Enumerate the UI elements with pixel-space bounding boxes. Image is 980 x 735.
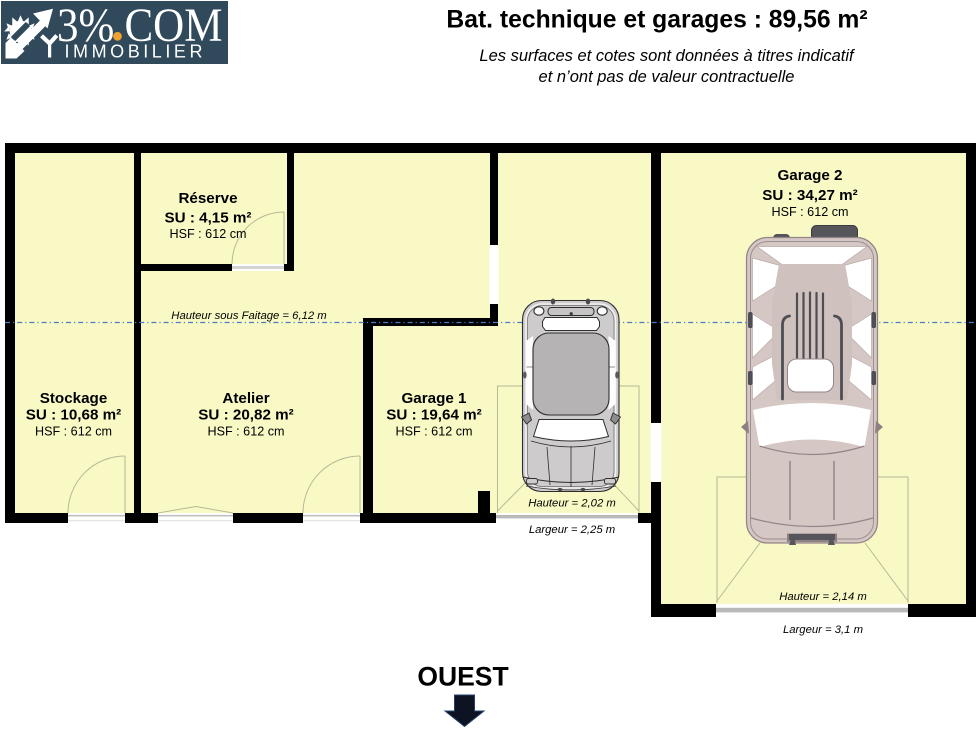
svg-text:Garage 1: Garage 1 <box>401 390 467 407</box>
svg-text:Les surfaces et cotes sont don: Les surfaces et cotes sont données à tit… <box>479 47 856 65</box>
svg-text:Largeur = 3,1 m: Largeur = 3,1 m <box>783 624 863 636</box>
svg-text:Hauteur = 2,02 m: Hauteur = 2,02 m <box>528 498 616 510</box>
svg-text:SU : 4,15 m²: SU : 4,15 m² <box>165 210 252 227</box>
svg-text:HSF : 612 cm: HSF : 612 cm <box>396 425 473 439</box>
svg-text:Hauteur sous Faitage = 6,12 m: Hauteur sous Faitage = 6,12 m <box>171 310 326 322</box>
svg-text:Largeur = 2,25 m: Largeur = 2,25 m <box>529 524 615 536</box>
svg-text:SU : 34,27 m²: SU : 34,27 m² <box>762 187 857 204</box>
svg-text:Hauteur = 2,14 m: Hauteur = 2,14 m <box>779 591 867 603</box>
svg-text:IMMOBILIER: IMMOBILIER <box>65 42 207 62</box>
svg-text:Garage 2: Garage 2 <box>777 167 842 184</box>
svg-text:Atelier: Atelier <box>222 390 269 407</box>
svg-text:Bat. technique et garages : 89: Bat. technique et garages : 89,56 m² <box>446 7 867 34</box>
svg-text:HSF : 612 cm: HSF : 612 cm <box>208 425 285 439</box>
svg-text:Stockage: Stockage <box>40 390 108 407</box>
svg-text:HSF : 612 cm: HSF : 612 cm <box>35 425 112 439</box>
svg-text:et n’ont pas de valeur contrac: et n’ont pas de valeur contractuelle <box>539 68 795 86</box>
svg-text:SU : 10,68 m²: SU : 10,68 m² <box>26 407 121 424</box>
svg-text:Réserve: Réserve <box>178 190 237 207</box>
svg-text:SU : 19,64 m²: SU : 19,64 m² <box>386 407 481 424</box>
svg-text:HSF : 612 cm: HSF : 612 cm <box>772 205 849 219</box>
svg-text:HSF : 612 cm: HSF : 612 cm <box>170 227 247 241</box>
svg-text:OUEST: OUEST <box>417 662 508 692</box>
svg-text:SU : 20,82 m²: SU : 20,82 m² <box>198 407 293 424</box>
